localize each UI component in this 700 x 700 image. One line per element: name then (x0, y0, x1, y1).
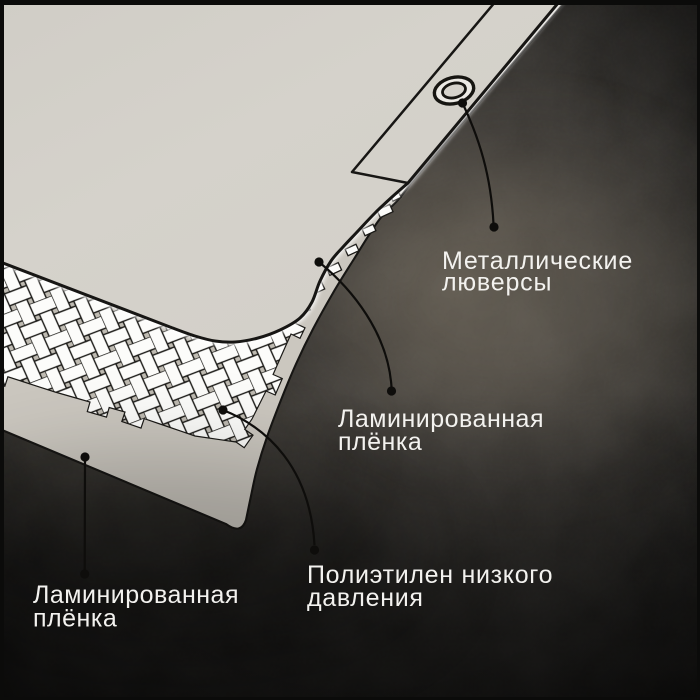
svg-text:люверсы: люверсы (442, 269, 552, 297)
svg-text:давления: давления (307, 584, 424, 612)
svg-text:плёнка: плёнка (338, 428, 422, 456)
svg-text:плёнка: плёнка (33, 605, 117, 633)
